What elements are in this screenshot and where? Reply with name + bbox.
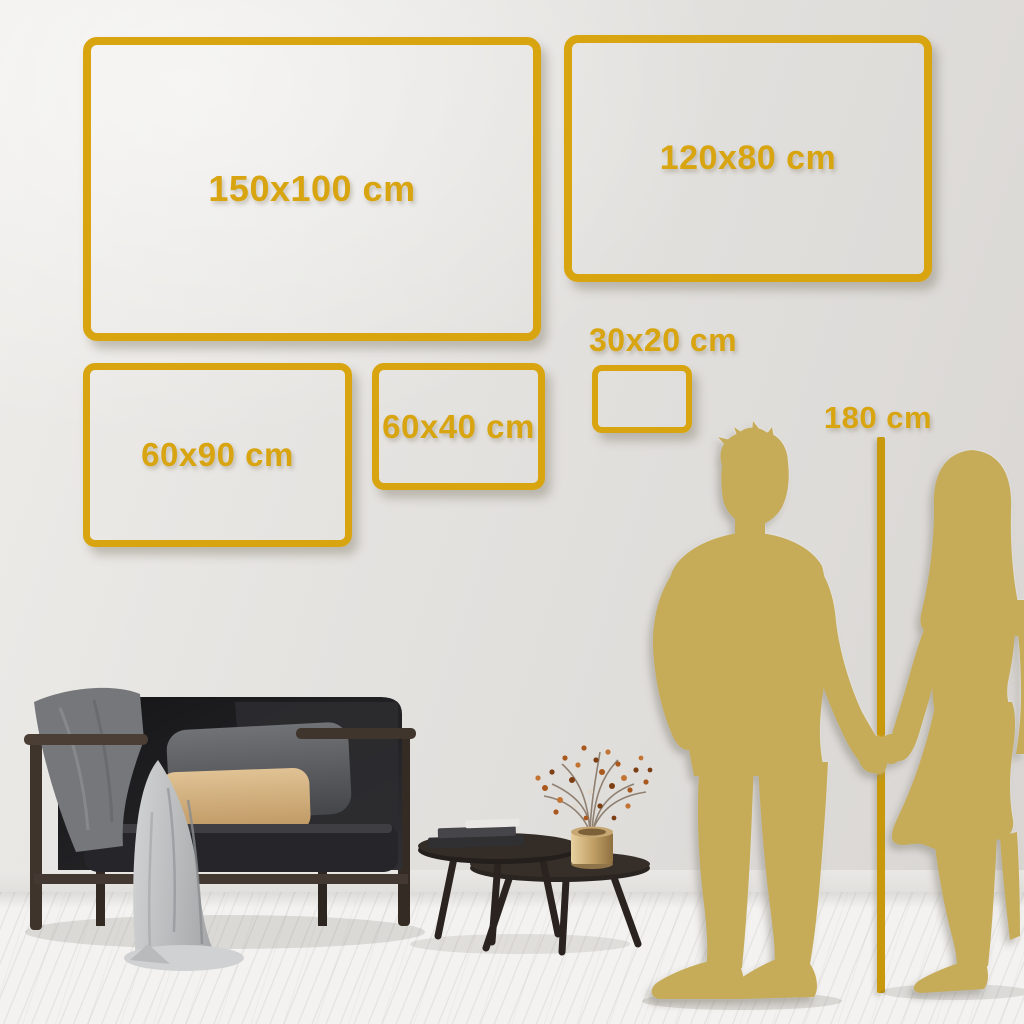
- size-frame-label-30x20: 30x20 cm: [589, 322, 737, 359]
- size-frame-60x40: 60x40 cm: [372, 363, 545, 490]
- blossoms: [535, 745, 652, 820]
- size-frame-30x20: [592, 365, 692, 433]
- size-frame-label: 60x40 cm: [382, 408, 535, 446]
- height-marker-line: [877, 437, 885, 993]
- size-frame-60x90: 60x90 cm: [83, 363, 352, 547]
- size-frame-120x80: 120x80 cm: [564, 35, 932, 282]
- beige-pillow: [159, 767, 311, 836]
- size-frame-150x100: 150x100 cm: [83, 37, 541, 341]
- size-frame-label: 120x80 cm: [660, 139, 837, 178]
- canvas-size-guide-scene: 150x100 cm 120x80 cm 60x90 cm 60x40 cm 3…: [0, 0, 1024, 1024]
- size-frame-label: 150x100 cm: [208, 168, 415, 210]
- dried-flower-branch: [535, 745, 652, 869]
- height-marker-label: 180 cm: [814, 400, 942, 436]
- gray-pillow: [166, 721, 353, 822]
- baseboard: [0, 870, 1024, 894]
- brass-vase: [571, 827, 613, 870]
- books-stack: [427, 818, 524, 848]
- wood-floor: [0, 892, 1024, 1024]
- size-frame-label: 60x90 cm: [141, 436, 294, 474]
